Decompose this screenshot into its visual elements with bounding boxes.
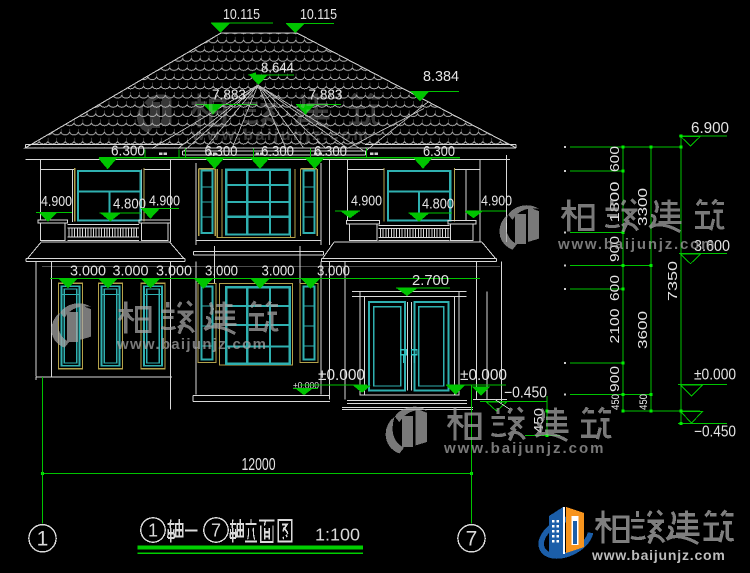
svg-text:6.300: 6.300 xyxy=(314,143,347,160)
svg-text:7: 7 xyxy=(211,521,221,541)
svg-text:8.384: 8.384 xyxy=(423,68,459,85)
svg-text:www.baijunjz.com: www.baijunjz.com xyxy=(557,236,716,253)
svg-text:3.000: 3.000 xyxy=(317,263,350,280)
svg-text:8.644: 8.644 xyxy=(261,60,294,77)
svg-text:7.883: 7.883 xyxy=(309,87,343,104)
svg-text:3.000: 3.000 xyxy=(156,263,192,280)
svg-text:1: 1 xyxy=(37,528,49,551)
svg-text:www.baijunjz.com: www.baijunjz.com xyxy=(116,336,267,353)
svg-text:−0.450: −0.450 xyxy=(694,424,736,441)
svg-text:1:100: 1:100 xyxy=(315,525,360,545)
svg-text:600: 600 xyxy=(607,275,622,301)
svg-text:12000: 12000 xyxy=(242,454,276,474)
svg-text:450: 450 xyxy=(638,394,650,410)
svg-text:3300: 3300 xyxy=(635,188,650,226)
svg-text:7350: 7350 xyxy=(665,261,680,301)
svg-text:±0.000: ±0.000 xyxy=(318,367,365,384)
svg-text:6.300: 6.300 xyxy=(111,143,145,160)
svg-text:10.115: 10.115 xyxy=(223,6,260,23)
svg-text:3.000: 3.000 xyxy=(70,263,106,280)
svg-text:7: 7 xyxy=(466,528,478,551)
svg-text:www.baijunjz.com: www.baijunjz.com xyxy=(191,127,370,144)
svg-text:www.baijunjz.com: www.baijunjz.com xyxy=(443,440,605,457)
svg-text:450: 450 xyxy=(610,394,622,410)
svg-text:4.900: 4.900 xyxy=(149,193,180,210)
svg-text:3.000: 3.000 xyxy=(205,263,238,280)
svg-text:10.115: 10.115 xyxy=(300,6,337,23)
svg-text:900: 900 xyxy=(607,366,622,392)
svg-text:3600: 3600 xyxy=(635,311,650,349)
svg-text:4.900: 4.900 xyxy=(41,193,72,210)
svg-text:3.000: 3.000 xyxy=(262,263,295,280)
svg-text:2.700: 2.700 xyxy=(412,272,449,289)
svg-text:6.300: 6.300 xyxy=(205,143,238,160)
svg-text:4.900: 4.900 xyxy=(481,193,512,210)
svg-text:1: 1 xyxy=(148,521,158,541)
svg-text:3.000: 3.000 xyxy=(113,263,149,280)
svg-text:www.baijunjz.com: www.baijunjz.com xyxy=(591,547,726,563)
svg-text:4.800: 4.800 xyxy=(422,196,454,213)
svg-text:−0.450: −0.450 xyxy=(504,385,547,402)
svg-text:4.800: 4.800 xyxy=(113,196,146,213)
svg-text:600: 600 xyxy=(607,146,622,172)
svg-text:6.300: 6.300 xyxy=(423,143,455,160)
svg-text:6.900: 6.900 xyxy=(691,120,729,137)
svg-text:6.300: 6.300 xyxy=(261,143,294,160)
svg-text:±0.000: ±0.000 xyxy=(694,367,736,384)
svg-text:2100: 2100 xyxy=(607,309,622,344)
svg-text:4.900: 4.900 xyxy=(351,193,382,210)
svg-text:±0.000: ±0.000 xyxy=(460,367,507,384)
